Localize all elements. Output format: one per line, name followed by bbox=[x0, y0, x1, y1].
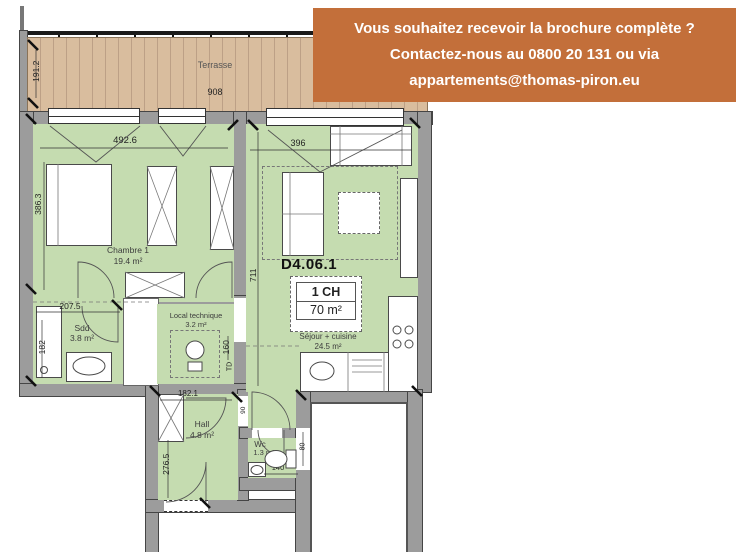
void-east-wall bbox=[408, 390, 422, 552]
room-wc-lobby bbox=[248, 384, 296, 428]
sofa-1 bbox=[330, 126, 412, 166]
sdd-area: 3.8 m² bbox=[60, 334, 104, 344]
wc-door-opening bbox=[252, 428, 282, 438]
wc-width-dim: 140 bbox=[264, 464, 292, 472]
bed bbox=[46, 164, 112, 246]
sejour-window bbox=[266, 108, 404, 126]
wardrobe-2 bbox=[210, 166, 234, 250]
sejour-height-dim: 711 bbox=[249, 255, 258, 295]
tv-unit bbox=[400, 178, 418, 278]
boiler-zone bbox=[170, 330, 220, 378]
sdd-height-dim: 182 bbox=[38, 327, 47, 367]
terrace-label: Terrasse bbox=[185, 60, 245, 70]
terrace-width-dim: 908 bbox=[200, 88, 230, 97]
hall-west-wall bbox=[146, 384, 158, 552]
hall-width-dim: 182.1 bbox=[168, 390, 208, 398]
sdd-washbasin bbox=[66, 352, 112, 382]
hall-area: 4.8 m² bbox=[178, 431, 226, 441]
contact-email[interactable]: appartements@thomas-piron.eu bbox=[313, 68, 736, 94]
entrance-door-opening bbox=[164, 500, 208, 512]
sejour-name: Séjour + cuisine bbox=[280, 332, 376, 341]
mid-wall bbox=[234, 112, 246, 390]
hall-name: Hall bbox=[178, 420, 226, 430]
west-wall bbox=[20, 112, 33, 396]
chambre-area: 19.4 m² bbox=[88, 257, 168, 267]
sejour-width-dim: 396 bbox=[283, 139, 313, 148]
terrace-depth-dim: 191.2 bbox=[32, 51, 41, 91]
shaft-dim: 80 bbox=[300, 432, 307, 462]
east-wall bbox=[418, 112, 431, 392]
hall-height-dim: 276.5 bbox=[162, 444, 171, 484]
chambre-name: Chambre 1 bbox=[88, 246, 168, 256]
coffee-table bbox=[338, 192, 380, 234]
chambre-width-dim: 492.6 bbox=[100, 136, 150, 146]
chambre-window-2 bbox=[158, 108, 206, 124]
banner-line-1: Vous souhaitez recevoir la brochure comp… bbox=[313, 16, 736, 42]
void-west-wall bbox=[296, 390, 310, 552]
banner-line-2: Contactez-nous au 0800 20 131 ou via bbox=[313, 42, 736, 68]
unit-info-box: 1 CH 70 m² bbox=[296, 282, 356, 320]
wardrobe-1 bbox=[147, 166, 177, 246]
wc-area: 1.3 m² bbox=[242, 449, 286, 458]
plan-edge-line bbox=[20, 6, 24, 34]
kitchen-counter-right bbox=[388, 296, 418, 392]
sofa-2 bbox=[282, 172, 324, 256]
terrace-west-wall bbox=[20, 31, 27, 112]
lobby-dim: 90 bbox=[241, 395, 248, 425]
dresser bbox=[125, 272, 185, 298]
td-label: TD bbox=[227, 352, 234, 382]
floorplan-page: Terrasse 908 191.2 492.6 396 386.3 711 C… bbox=[0, 0, 736, 552]
unit-type: 1 CH bbox=[297, 283, 355, 302]
unit-code: D4.06.1 bbox=[281, 256, 337, 273]
unit-area: 70 m² bbox=[297, 302, 355, 320]
chambre-height-dim: 386.3 bbox=[34, 184, 43, 224]
sejour-area: 24.5 m² bbox=[280, 342, 376, 351]
sdd-width-dim: 207.5 bbox=[52, 302, 88, 311]
void-courtyard bbox=[310, 402, 408, 552]
chambre-window-1 bbox=[48, 108, 140, 124]
promo-banner: Vous souhaitez recevoir la brochure comp… bbox=[313, 8, 736, 102]
